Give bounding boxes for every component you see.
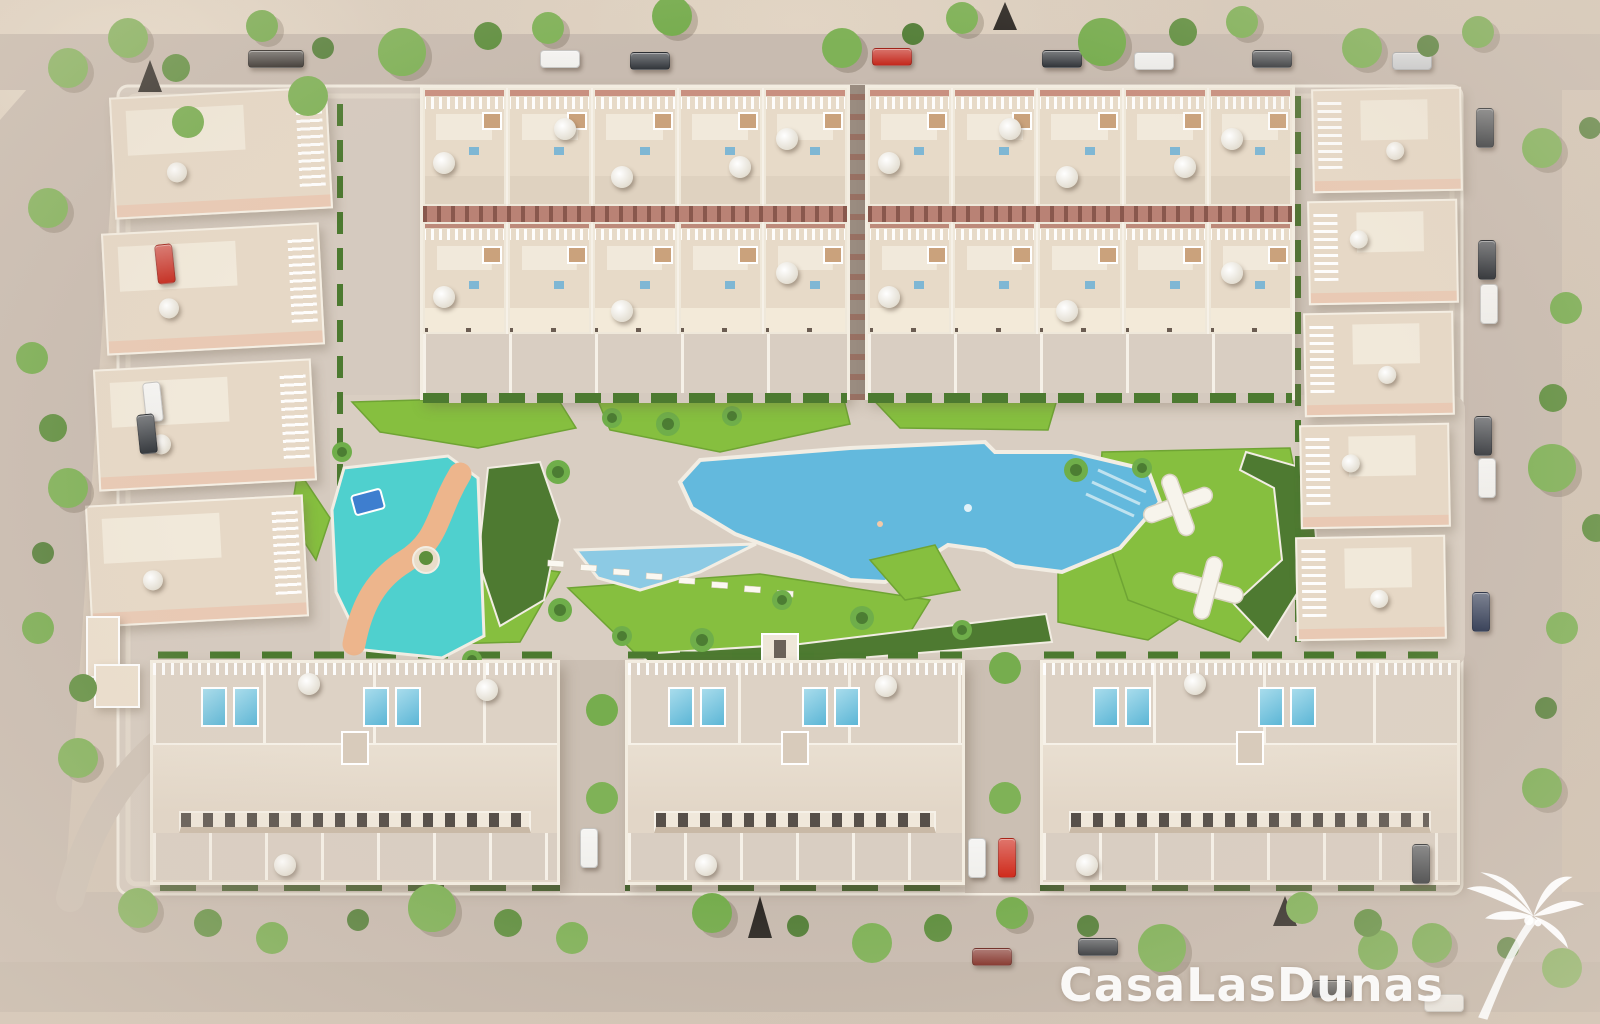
townhouse-unit xyxy=(508,222,593,334)
parked-car xyxy=(1478,458,1496,498)
roof-access xyxy=(1236,731,1264,765)
townhouse-unit xyxy=(423,88,508,206)
townhouse-unit xyxy=(953,88,1038,206)
parked-car xyxy=(580,828,598,868)
parked-car xyxy=(972,948,1012,966)
block-alley xyxy=(850,85,865,400)
east-house-cluster xyxy=(1311,87,1463,194)
townhouse-unit xyxy=(764,88,847,206)
parasol xyxy=(1184,673,1206,695)
townhouse-unit xyxy=(1209,222,1292,334)
parked-truck xyxy=(248,50,304,68)
townhouse-unit xyxy=(1038,222,1123,334)
front-patios xyxy=(153,833,557,880)
front-garden xyxy=(423,393,847,403)
plunge-pool xyxy=(201,687,227,727)
north-townhouse-block-right xyxy=(865,85,1295,400)
plunge-pool xyxy=(802,687,828,727)
roof xyxy=(628,743,962,811)
east-house-cluster xyxy=(1295,535,1447,642)
roof xyxy=(1043,743,1457,811)
townhouse-unit xyxy=(508,88,593,206)
parked-car xyxy=(1252,50,1292,68)
watermark: CasaLasDunas xyxy=(1059,870,1590,1022)
watermark-text: CasaLasDunas xyxy=(1059,962,1444,1008)
plunge-pool xyxy=(363,687,389,727)
front-patios xyxy=(628,833,962,880)
front-patios xyxy=(423,334,847,393)
parked-car xyxy=(968,838,986,878)
roof xyxy=(153,743,557,811)
west-house-cluster xyxy=(85,494,309,627)
parasol xyxy=(476,679,498,701)
parked-car xyxy=(1134,52,1174,70)
north-townhouse-block-left xyxy=(420,85,850,400)
parked-car xyxy=(1472,592,1490,632)
plunge-pool xyxy=(1258,687,1284,727)
west-house-cluster xyxy=(93,358,317,491)
east-house-cluster xyxy=(1307,199,1459,306)
townhouse-unit xyxy=(593,222,678,334)
parked-car xyxy=(1480,284,1498,324)
swimmer xyxy=(877,521,883,527)
swimmer xyxy=(964,504,972,512)
roof-access xyxy=(781,731,809,765)
plunge-pool xyxy=(834,687,860,727)
townhouse-unit xyxy=(1124,88,1209,206)
townhouse-unit xyxy=(1038,88,1123,206)
townhouse-unit xyxy=(679,222,764,334)
west-house-cluster xyxy=(101,222,325,355)
palm-tree-icon xyxy=(1440,870,1590,1022)
townhouse-unit xyxy=(1209,88,1292,206)
townhouse-unit xyxy=(1124,222,1209,334)
east-house-cluster xyxy=(1299,423,1451,530)
brick-lane xyxy=(868,206,1292,222)
townhouse-unit xyxy=(593,88,678,206)
plunge-pool xyxy=(668,687,694,727)
parked-car-red xyxy=(998,838,1016,878)
plunge-pool xyxy=(233,687,259,727)
plunge-pool xyxy=(1290,687,1316,727)
plunge-pool xyxy=(1125,687,1151,727)
townhouse-unit xyxy=(679,88,764,206)
parked-car-red xyxy=(872,48,912,66)
parked-car xyxy=(1392,52,1432,70)
kids-splash-pool xyxy=(332,456,484,658)
window-strip xyxy=(654,811,936,833)
east-house-cluster xyxy=(1303,311,1455,418)
aerial-render: CasaLasDunas xyxy=(0,0,1600,1024)
townhouse-unit xyxy=(868,88,953,206)
townhouse-unit xyxy=(764,222,847,334)
plunge-pool xyxy=(1093,687,1119,727)
street-north xyxy=(0,34,1600,90)
parasol xyxy=(695,854,717,876)
south-block-3 xyxy=(1040,660,1460,885)
west-house-cluster xyxy=(109,86,333,219)
roof-access xyxy=(341,731,369,765)
brick-lane xyxy=(423,206,847,222)
townhouse-unit xyxy=(953,222,1038,334)
street-east xyxy=(1462,80,1562,932)
parked-car xyxy=(1474,416,1492,456)
townhouse-unit xyxy=(868,222,953,334)
parasol xyxy=(875,675,897,697)
front-garden xyxy=(868,393,1292,403)
parked-car xyxy=(1478,240,1496,280)
entrance-building xyxy=(94,664,140,708)
parked-car xyxy=(630,52,670,70)
south-block-2 xyxy=(625,660,965,885)
plunge-pool xyxy=(700,687,726,727)
parked-car xyxy=(1476,108,1494,148)
window-strip xyxy=(1069,811,1431,833)
parked-car xyxy=(540,50,580,68)
window-strip xyxy=(179,811,531,833)
front-patios xyxy=(868,334,1292,393)
south-block-1 xyxy=(150,660,560,885)
plunge-pool xyxy=(395,687,421,727)
parasol xyxy=(298,673,320,695)
parked-car xyxy=(1042,50,1082,68)
townhouse-unit xyxy=(423,222,508,334)
